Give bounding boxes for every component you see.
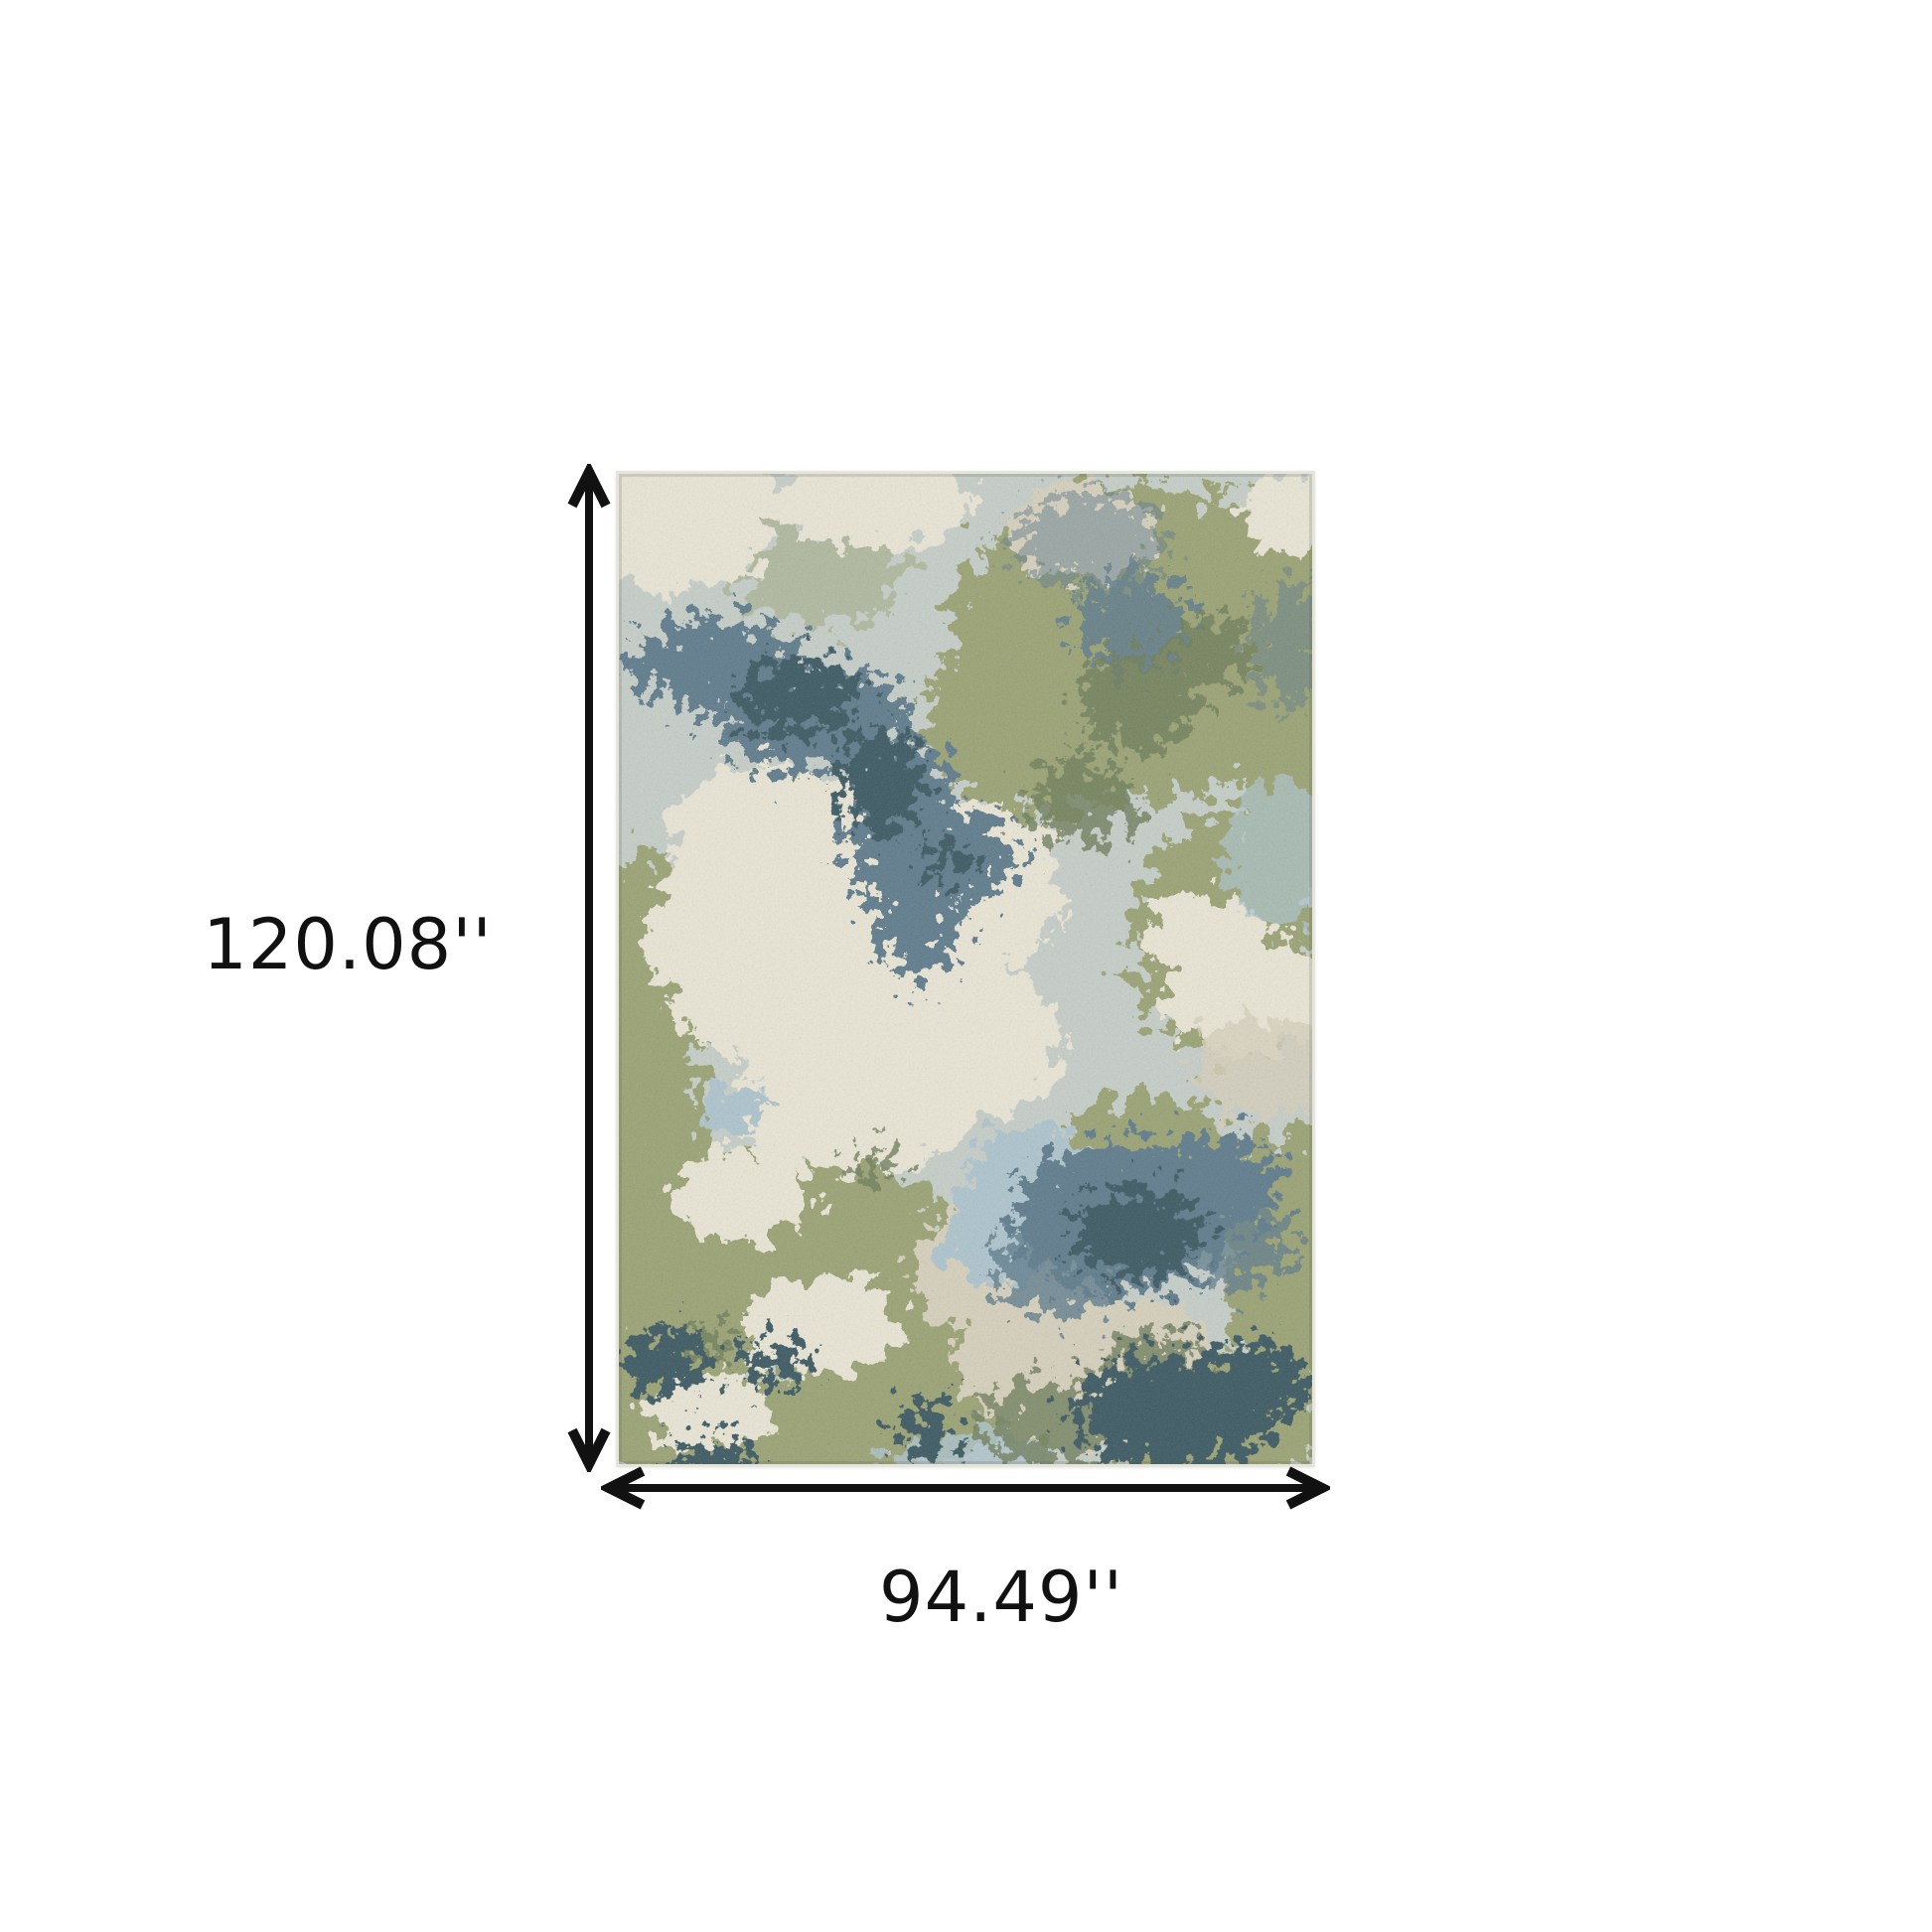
- rug-pattern: [619, 474, 1312, 1464]
- width-dimension-arrow: [601, 1465, 1330, 1511]
- rug-image: [616, 471, 1315, 1467]
- product-dimensions-diagram: 120.08'' 94.49'': [0, 0, 1932, 1932]
- height-dimension-label: 120.08'': [203, 904, 492, 985]
- height-dimension-arrow: [566, 464, 612, 1472]
- width-dimension-label: 94.49'': [879, 1557, 1123, 1638]
